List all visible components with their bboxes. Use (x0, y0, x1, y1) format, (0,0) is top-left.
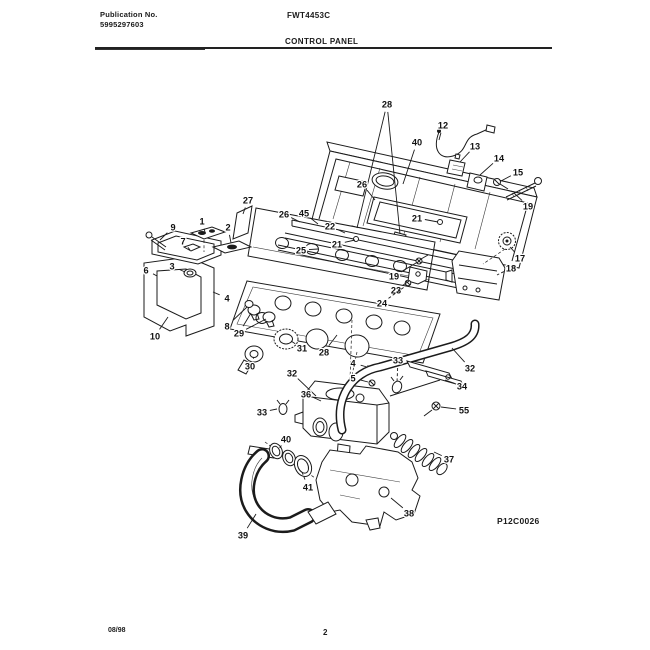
callout-32: 32 (287, 369, 297, 379)
callout-28: 28 (382, 100, 392, 110)
leader-line (439, 133, 441, 140)
callout-1: 1 (199, 217, 204, 227)
callout-4: 4 (224, 294, 230, 304)
callout-14: 14 (494, 154, 505, 164)
diagram-id: P12C0026 (497, 516, 540, 526)
callout-19: 19 (523, 202, 533, 212)
callout-18: 18 (506, 264, 516, 274)
leader-line (229, 235, 231, 243)
callout-28: 28 (319, 348, 329, 358)
callout-32: 32 (465, 364, 475, 374)
leader-line (397, 368, 398, 382)
callout-34: 34 (457, 382, 468, 392)
callout-45: 45 (299, 209, 309, 219)
callout-31: 31 (297, 344, 307, 354)
callout-33: 33 (393, 356, 403, 366)
leader-line (361, 365, 367, 367)
leader-line (452, 348, 465, 362)
date-code: 08/98 (108, 627, 126, 634)
callout-26: 26 (357, 180, 367, 190)
leader-line (270, 409, 277, 410)
callout-36: 36 (301, 390, 311, 400)
callout-5: 5 (350, 374, 355, 384)
callout-30: 30 (245, 362, 255, 372)
callout-29: 29 (234, 329, 244, 339)
callout-55: 55 (459, 406, 469, 416)
callout-38: 38 (404, 509, 414, 519)
leader-line (361, 380, 368, 382)
leader-line (434, 452, 442, 456)
callout-15: 15 (513, 168, 523, 178)
manual-page: Publication No. 5995297603 FWT4453C CONT… (0, 0, 650, 650)
callout-39: 39 (238, 531, 248, 541)
callout-13: 13 (470, 142, 480, 152)
callout-21: 21 (412, 214, 422, 224)
callout-22: 22 (325, 222, 335, 232)
leader-line (480, 163, 493, 175)
callout-3: 3 (169, 262, 174, 272)
callout-25: 25 (296, 246, 306, 256)
callout-40: 40 (281, 435, 291, 445)
callout-7: 7 (180, 237, 185, 247)
callout-26: 26 (279, 210, 289, 220)
callout-17: 17 (515, 254, 525, 264)
callout-9: 9 (170, 223, 175, 233)
callout-33: 33 (257, 408, 267, 418)
callout-10: 10 (150, 332, 160, 342)
callout-19: 19 (389, 272, 399, 282)
callout-4: 4 (350, 359, 356, 369)
exploded-view-diagram: 2812401314151917182726452622212125192324… (0, 0, 650, 650)
callout-41: 41 (303, 483, 313, 493)
callout-23: 23 (391, 286, 401, 296)
page-number: 2 (323, 628, 327, 637)
callout-37: 37 (444, 455, 454, 465)
callout-27: 27 (243, 196, 253, 206)
seal-rings-art (265, 441, 315, 479)
callout-6: 6 (143, 266, 148, 276)
leader-line (309, 249, 318, 250)
callout-40: 40 (412, 138, 422, 148)
callout-24: 24 (377, 299, 388, 309)
callout-12: 12 (438, 121, 448, 131)
callout-21: 21 (332, 240, 342, 250)
callout-8: 8 (224, 322, 229, 332)
leader-line (460, 152, 470, 162)
leader-line (441, 407, 456, 409)
callout-2: 2 (225, 223, 230, 233)
leader-line (501, 176, 511, 181)
